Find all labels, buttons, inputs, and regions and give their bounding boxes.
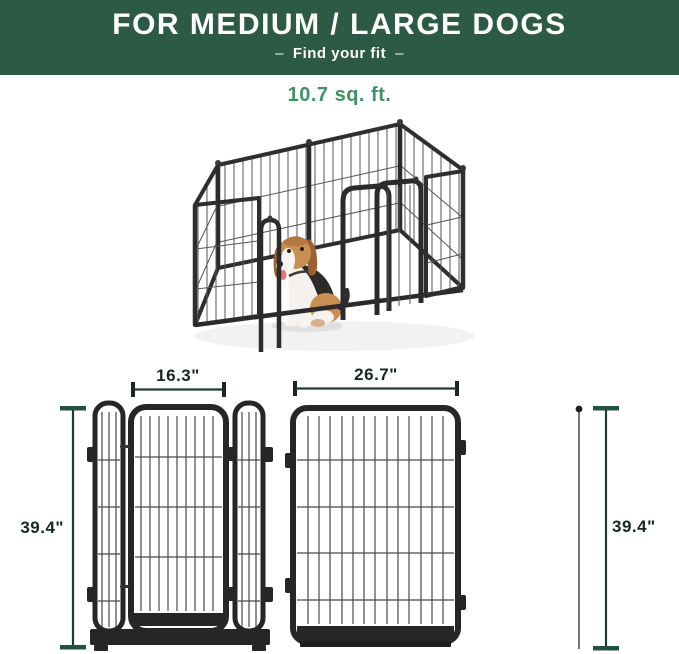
wide-panel-diagram [285,381,619,651]
page-title: FOR MEDIUM / LARGE DOGS [0,0,679,42]
panel-height-label: 39.4" [612,517,676,537]
gate-height-label: 39.4" [2,518,64,538]
area-label: 10.7 sq. ft. [0,84,679,107]
panel-width-label: 26.7" [326,365,426,385]
front-wall-right [426,171,463,296]
product-infographic: FOR MEDIUM / LARGE DOGS –Find your fit– … [0,0,679,654]
gate-width-label: 16.3" [128,366,228,386]
playpen-render [185,110,485,370]
tagline: –Find your fit– [0,45,679,62]
height-reference-line [576,406,583,649]
tagline-dash-right: – [395,45,404,62]
beagle-illustration [271,236,348,332]
header-banner: FOR MEDIUM / LARGE DOGS –Find your fit– [0,0,679,75]
tagline-text: Find your fit [293,45,386,62]
gate-panel-diagram [60,382,273,651]
tagline-dash-left: – [275,45,284,62]
front-wall-left [195,198,259,325]
dimension-diagrams [0,365,679,654]
